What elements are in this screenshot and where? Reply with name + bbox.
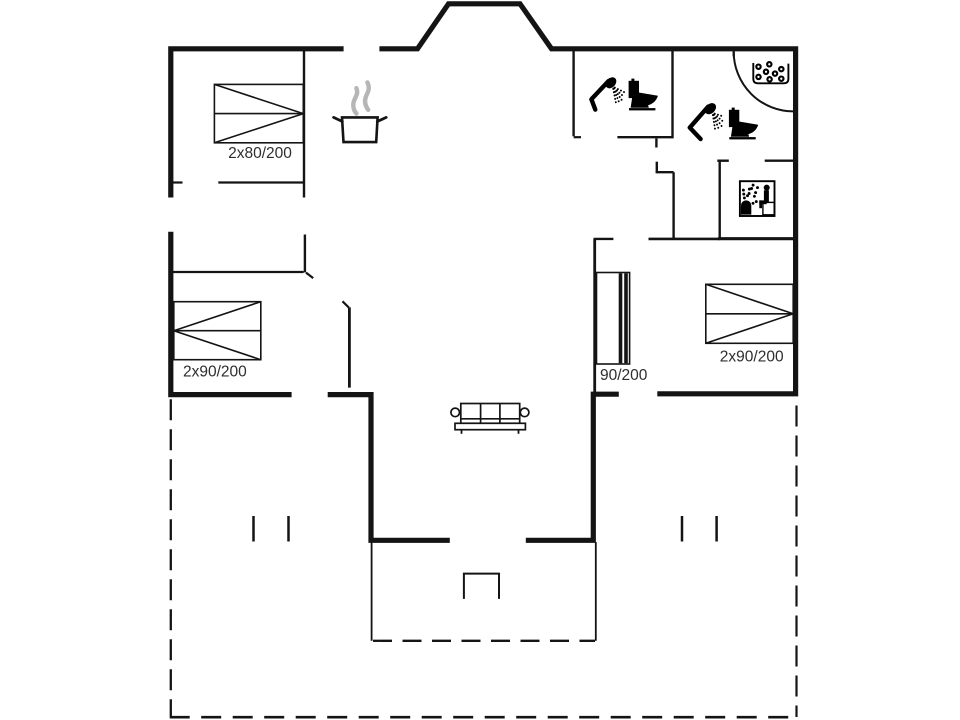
- svg-text:90/200: 90/200: [600, 367, 648, 384]
- svg-text:2x90/200: 2x90/200: [183, 363, 247, 380]
- svg-text:2x90/200: 2x90/200: [720, 349, 784, 366]
- svg-text:2x80/200: 2x80/200: [228, 145, 292, 162]
